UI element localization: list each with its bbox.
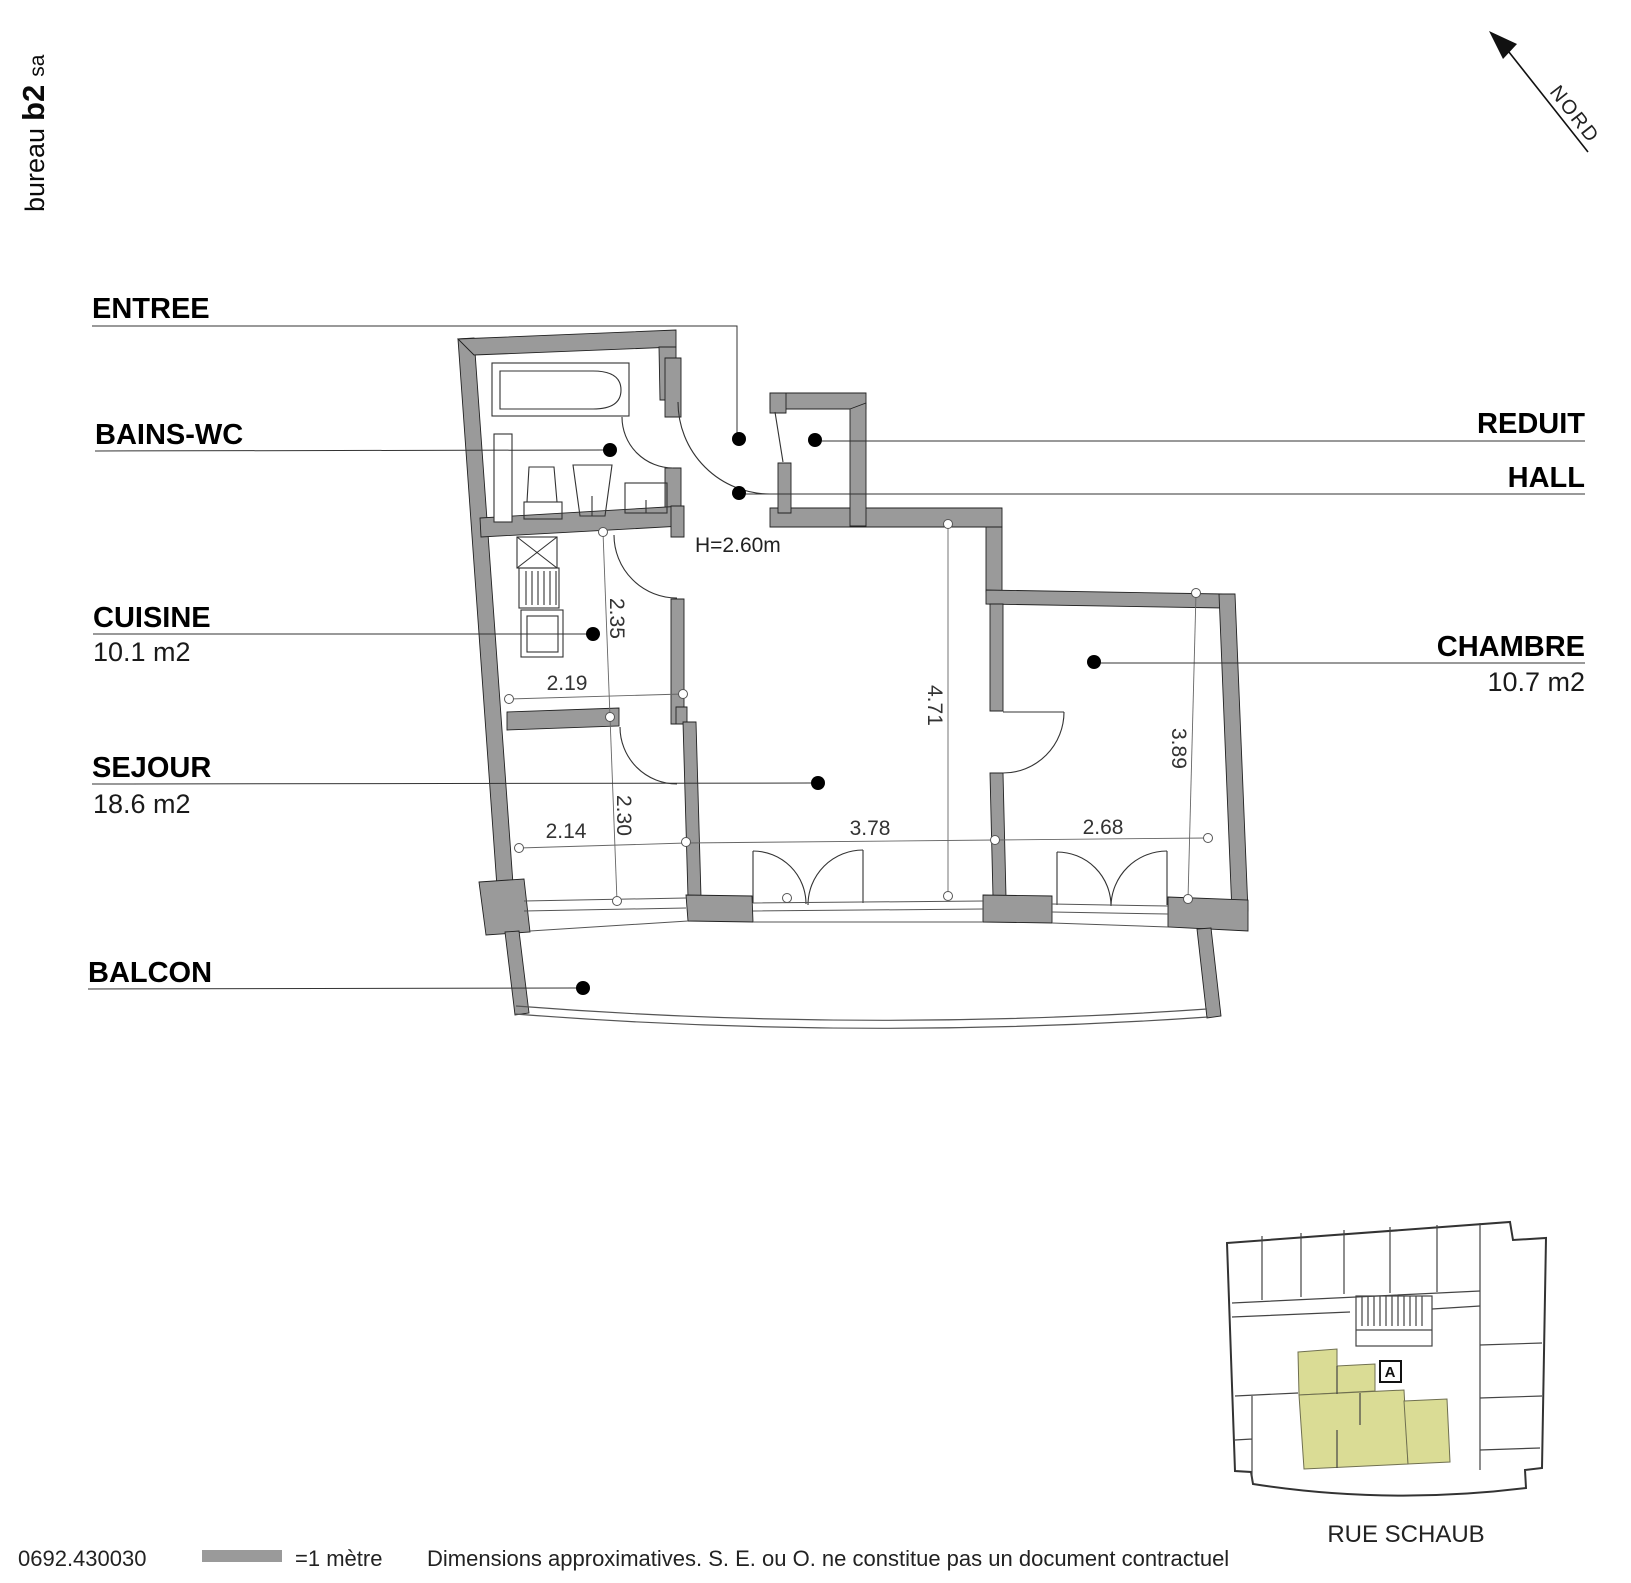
logo-bureau-b2: bureaub2sa [16, 54, 51, 212]
wall-kitchen-east-upper [671, 506, 684, 537]
reduit-door-leaf [775, 412, 783, 462]
room-label-bains-wc: BAINS-WC [95, 419, 243, 451]
wall-kitchen-east-lower [671, 599, 684, 724]
dim-cuisine-upper-depth: 2.35 [605, 598, 628, 639]
wall-kitchen-partition-left [507, 708, 619, 730]
room-label-reduit: REDUIT [1477, 408, 1585, 440]
key-plan: A RUE SCHAUB [1227, 1222, 1546, 1548]
area-label-sejour: 18.6 m2 [93, 789, 191, 819]
reduit-dot [808, 433, 822, 447]
bath-door-arc [622, 417, 673, 468]
facade-pier-4 [1168, 897, 1248, 931]
room-label-hall: HALL [1508, 462, 1585, 494]
dim-chambre-window-width: 2.68 [1083, 816, 1124, 839]
dim-cuisine-lower-depth: 2.30 [612, 795, 635, 836]
wall-niche [494, 434, 512, 522]
dim-cuisine-width: 2.19 [547, 672, 588, 695]
sejour-french-door-arcs [753, 850, 863, 905]
wall-reduit-east [850, 403, 866, 526]
room-label-sejour: SEJOUR [92, 752, 211, 784]
stove-icon [519, 568, 559, 608]
wall-west-exterior [458, 338, 513, 887]
dim-sejour-width: 3.78 [850, 817, 891, 840]
cuisine-dot [586, 627, 600, 641]
toilet-bowl-icon [527, 467, 557, 502]
wall-reduit-west-bottom [778, 463, 791, 513]
wall-hall-chambre-connector [986, 527, 1002, 592]
north-label: NORD [1545, 82, 1604, 148]
drawing-reference: 0692.430030 [18, 1546, 146, 1571]
chambre-dot [1087, 655, 1101, 669]
balcon-dot [576, 981, 590, 995]
scale-label: =1 mètre [295, 1546, 382, 1571]
leader-lines [88, 326, 1585, 989]
area-label-cuisine: 10.1 m2 [93, 637, 191, 667]
bathroom-fixtures [492, 363, 667, 522]
balcony-wall-left [505, 931, 529, 1015]
entree-dot [732, 432, 746, 446]
floor-plan-page: bureaub2sa NORD [0, 0, 1631, 1583]
facade-pier-1 [479, 879, 530, 935]
chambre-french-door-arcs [1057, 851, 1167, 906]
unit-marker-label: A [1385, 1364, 1396, 1381]
wall-chambre-north [986, 590, 1224, 608]
wall-sejour-west [683, 722, 701, 897]
dimension-markers [505, 520, 1213, 906]
ceiling-height-label: H=2.60m [695, 534, 781, 557]
floor-plan-drawing: bureaub2sa NORD [0, 0, 1631, 1583]
wall-chambre-partition-upper [990, 604, 1003, 711]
bains-dot [603, 443, 617, 457]
facade-pier-2 [686, 895, 753, 922]
room-label-chambre: CHAMBRE [1437, 631, 1585, 663]
scale-bar [202, 1550, 282, 1562]
street-label: RUE SCHAUB [1327, 1521, 1484, 1548]
room-label-balcon: BALCON [88, 957, 212, 989]
north-arrow-icon: NORD [1489, 31, 1604, 152]
room-label-entree: ENTREE [92, 293, 210, 325]
room-label-cuisine: CUISINE [93, 602, 211, 634]
entry-door-arc [678, 402, 770, 494]
kitchen-door-arc [614, 535, 677, 598]
wall-reduit-west-top [770, 393, 786, 413]
wall-chambre-partition-lower [990, 773, 1006, 897]
wall-bath-north [458, 330, 676, 355]
area-label-chambre: 10.7 m2 [1487, 667, 1585, 697]
wall-sejour-north [770, 508, 1002, 527]
dim-sejour-depth: 4.71 [923, 685, 946, 726]
kitchen-partition-door-arc [620, 727, 677, 784]
chambre-door-arc [1003, 712, 1064, 773]
wall-kitchen-partition-right [676, 707, 687, 724]
balcony-rail [515, 1006, 1208, 1028]
dim-chambre-depth: 3.89 [1167, 728, 1190, 769]
dim-bay-window-width: 2.14 [546, 820, 587, 843]
hall-dot [732, 486, 746, 500]
wall-chambre-east [1219, 594, 1248, 913]
sejour-dot [811, 776, 825, 790]
balcony-wall-right [1197, 928, 1221, 1018]
kitchen-fixtures [517, 537, 563, 657]
facade-pier-3 [983, 895, 1052, 923]
disclaimer-text: Dimensions approximatives. S. E. ou O. n… [427, 1546, 1229, 1571]
bathtub-inner [500, 371, 621, 409]
